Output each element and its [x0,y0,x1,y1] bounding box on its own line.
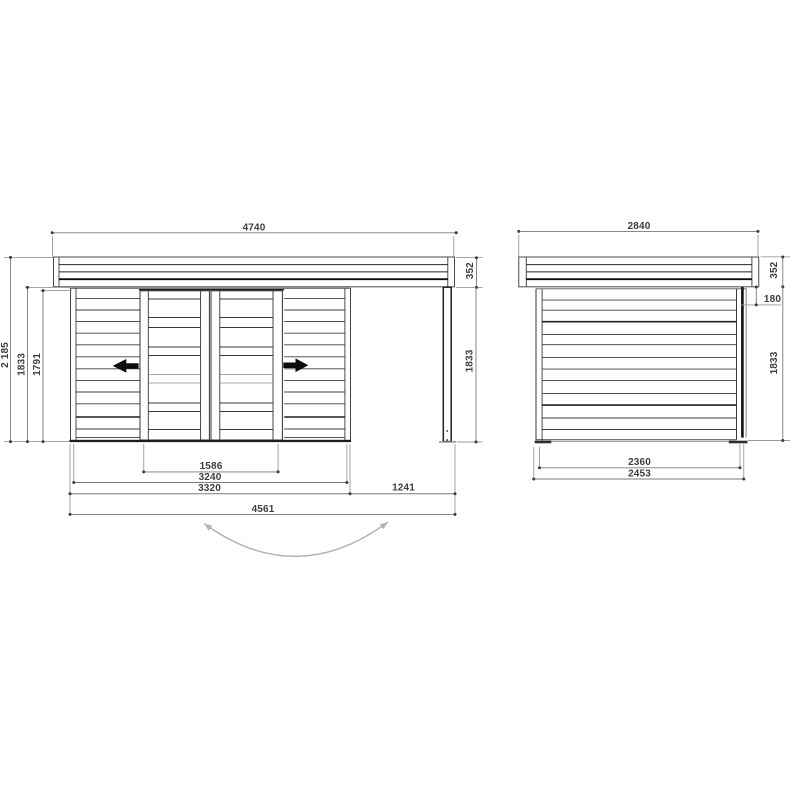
svg-text:1586: 1586 [200,461,223,472]
svg-text:2453: 2453 [628,468,651,479]
svg-text:1833: 1833 [769,351,780,374]
svg-text:2840: 2840 [628,221,651,232]
svg-text:1241: 1241 [392,483,415,494]
svg-text:1833: 1833 [464,349,475,372]
svg-text:3320: 3320 [198,483,221,494]
svg-text:2 185: 2 185 [0,342,11,368]
svg-text:3240: 3240 [199,472,222,483]
svg-text:352: 352 [769,261,780,278]
svg-text:1791: 1791 [32,353,43,376]
svg-text:2360: 2360 [628,457,651,468]
svg-text:352: 352 [465,262,476,279]
svg-text:180: 180 [764,294,781,305]
svg-text:1833: 1833 [17,353,28,376]
svg-text:4561: 4561 [252,504,275,515]
svg-text:4740: 4740 [243,222,266,233]
